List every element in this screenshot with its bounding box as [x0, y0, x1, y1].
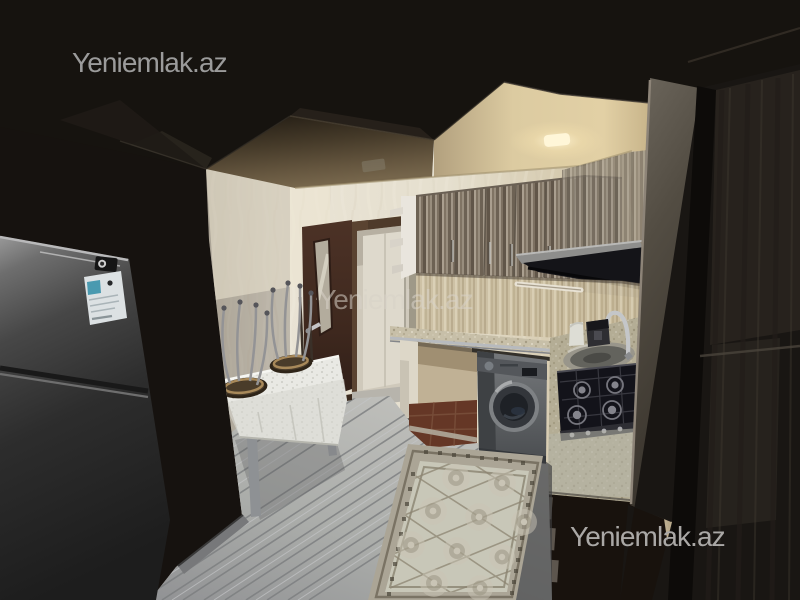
svg-text:Yeniemlak.az: Yeniemlak.az [318, 284, 473, 315]
svg-text:Yeniemlak.az: Yeniemlak.az [72, 47, 227, 78]
svg-text:Yeniemlak.az: Yeniemlak.az [570, 521, 725, 552]
